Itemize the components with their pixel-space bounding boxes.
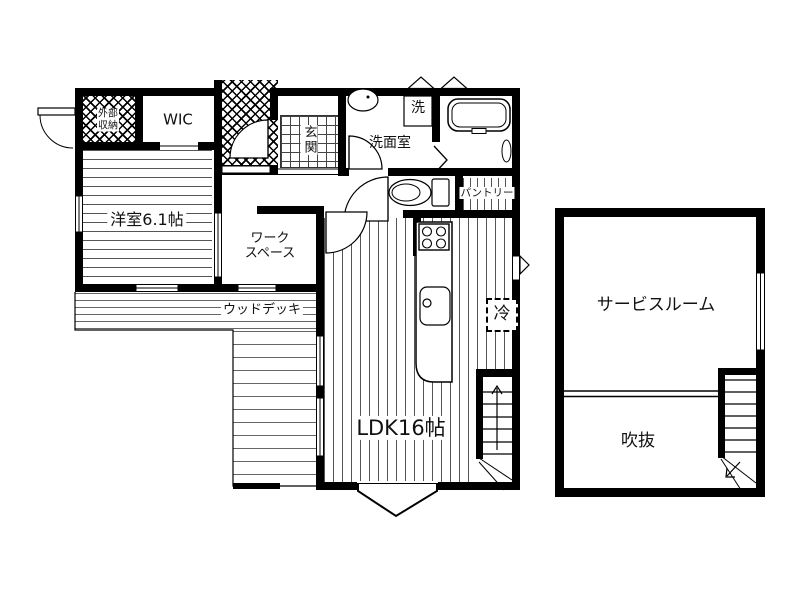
label-western-room: 洋室6.1帖	[107, 211, 186, 229]
label-ldk: LDK16帖	[352, 416, 449, 440]
staircase-1f	[479, 386, 512, 490]
side-door	[513, 256, 530, 280]
void-boundary	[564, 391, 718, 397]
label-pantry: パントリー	[459, 187, 514, 199]
label-fridge: 冷	[492, 305, 513, 325]
window	[136, 285, 276, 292]
toilet	[389, 179, 449, 206]
washroom-sink	[348, 89, 378, 111]
label-washer: 洗	[409, 100, 427, 116]
label-workspace: ワーク スペース	[243, 232, 297, 262]
staircase-2f	[721, 380, 756, 490]
kitchen-sink	[420, 287, 450, 325]
stove	[419, 224, 449, 250]
floor-plan: 外部 収納 WIC 玄関 洗面室 洗 パントリー 洋室6.1帖 ワーク スペース…	[0, 0, 800, 600]
label-wood-deck: ウッドデッキ	[221, 304, 303, 319]
label-exterior-storage: 外部 収納	[97, 109, 119, 132]
vent-icon	[408, 77, 467, 89]
label-service-room: サービスルーム	[595, 296, 718, 316]
bath-counter	[502, 140, 511, 162]
wood-deck-outline	[75, 292, 316, 489]
label-exterior-storage-line1: 外部	[98, 109, 118, 120]
bay-window	[357, 481, 438, 516]
storage-door-arc	[38, 108, 75, 148]
entrance-step	[278, 168, 338, 176]
label-wic: WIC	[161, 111, 195, 128]
label-exterior-storage-line2: 収納	[98, 120, 118, 131]
label-workspace-line1: ワーク	[250, 231, 289, 246]
window	[76, 196, 83, 232]
bath-folding-door	[434, 146, 447, 174]
ldk-door-arc	[326, 212, 367, 253]
front-door-arc	[230, 120, 268, 158]
sliding-door	[215, 213, 222, 277]
window	[317, 336, 324, 456]
window	[757, 273, 765, 350]
label-workspace-line2: スペース	[245, 246, 295, 261]
label-void: 吹抜	[619, 432, 657, 452]
wic-doorway	[160, 143, 198, 149]
label-washroom: 洗面室	[367, 135, 413, 151]
label-entrance: 玄関	[301, 125, 318, 155]
porch-step	[222, 166, 270, 173]
bathtub	[448, 99, 510, 134]
